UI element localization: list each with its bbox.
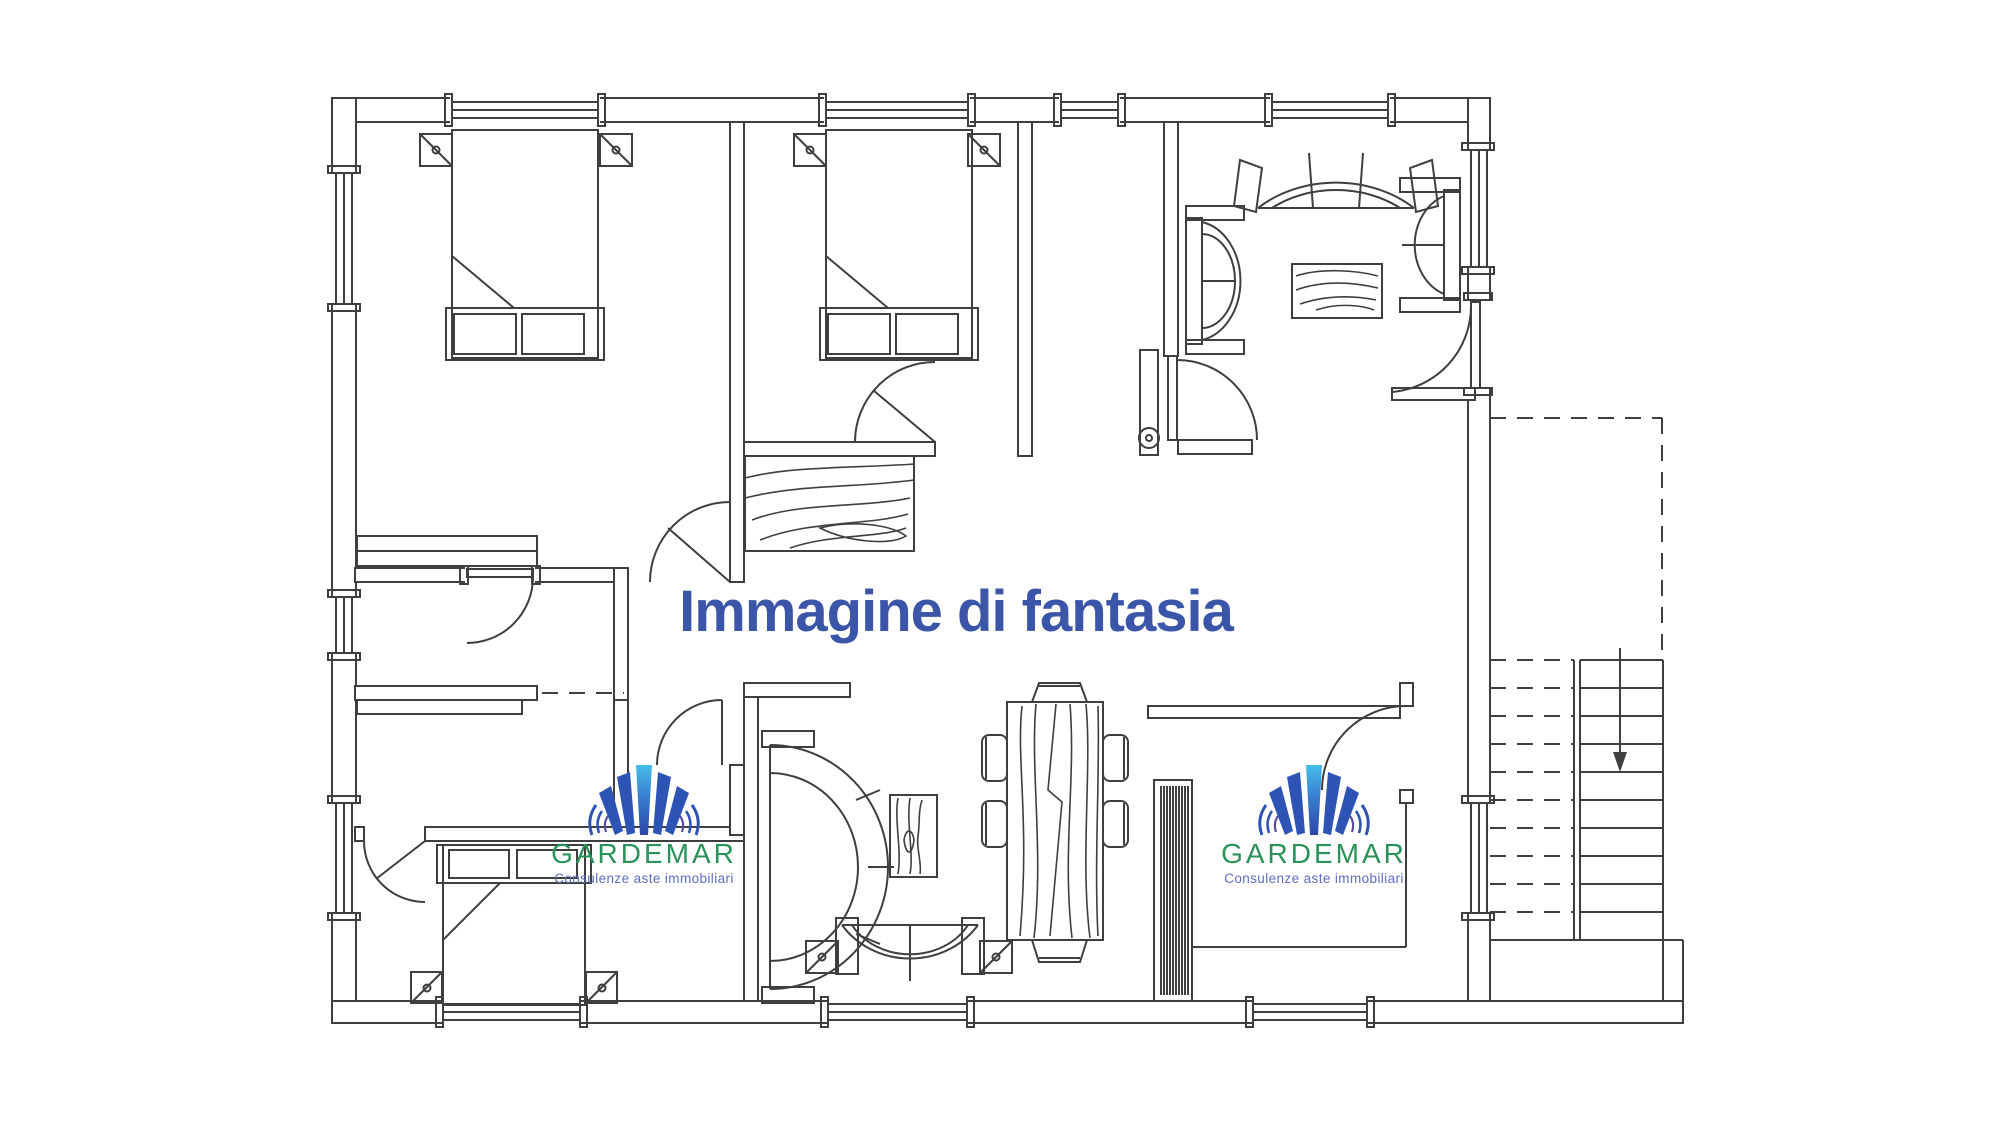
floor-plan-page: Immagine di fantasia GARDEMAR Consulenze… — [0, 0, 2000, 1125]
watermark-caption: Immagine di fantasia — [679, 578, 1233, 645]
window-bottom-2 — [821, 997, 974, 1027]
gardemar-brand-text: GARDEMAR — [514, 840, 774, 868]
dining-chairs — [982, 735, 1128, 847]
window-bottom-3 — [1246, 997, 1374, 1027]
wardrobe-bedroom-1 — [357, 536, 537, 566]
gardemar-logo-right: GARDEMAR Consulenze aste immobiliari — [1184, 758, 1444, 886]
window-bottom-1 — [436, 997, 587, 1027]
window-top-3 — [1054, 94, 1125, 126]
bed-bedroom-1 — [446, 130, 604, 360]
door-closet — [460, 566, 540, 643]
window-right-2 — [1462, 796, 1494, 920]
door-bedroom-3 — [657, 700, 722, 765]
door-living-room — [1168, 356, 1257, 440]
window-left-2 — [328, 590, 360, 660]
curved-sofa-left — [762, 731, 894, 1003]
window-top-1 — [445, 94, 605, 126]
window-top-4 — [1265, 94, 1395, 126]
gardemar-brand-text: GARDEMAR — [1184, 840, 1444, 868]
window-right-1 — [1462, 143, 1494, 274]
vanity-bathroom — [357, 700, 522, 714]
dining-table — [1007, 683, 1103, 962]
arched-sofa — [1234, 153, 1438, 212]
gardemar-fan-icon — [1254, 758, 1374, 842]
gardemar-tagline-text: Consulenze aste immobiliari — [1184, 871, 1444, 886]
entrance-door — [1139, 350, 1159, 455]
door-bedroom-2 — [855, 362, 935, 442]
living-room-rug — [1292, 264, 1382, 318]
loveseat-left — [1186, 206, 1244, 354]
gardemar-fan-icon — [584, 758, 704, 842]
window-left-1 — [328, 166, 360, 311]
pouf-rug — [890, 795, 937, 877]
sofa-right — [1400, 178, 1460, 312]
window-left-3 — [328, 796, 360, 920]
door-bedroom-1 — [650, 502, 730, 582]
stairs-down-arrow-icon — [1613, 648, 1627, 772]
door-terrace — [1391, 293, 1492, 395]
bed-bedroom-2 — [820, 130, 978, 360]
door-bathroom — [364, 841, 425, 902]
floor-plan-drawing — [0, 0, 2000, 1125]
curved-sofa-bottom — [836, 918, 984, 981]
gardemar-logo-left: GARDEMAR Consulenze aste immobiliari — [514, 758, 774, 886]
window-top-2 — [819, 94, 975, 126]
hall-rug — [745, 456, 914, 551]
gardemar-tagline-text: Consulenze aste immobiliari — [514, 871, 774, 886]
staircase — [1490, 418, 1683, 1001]
